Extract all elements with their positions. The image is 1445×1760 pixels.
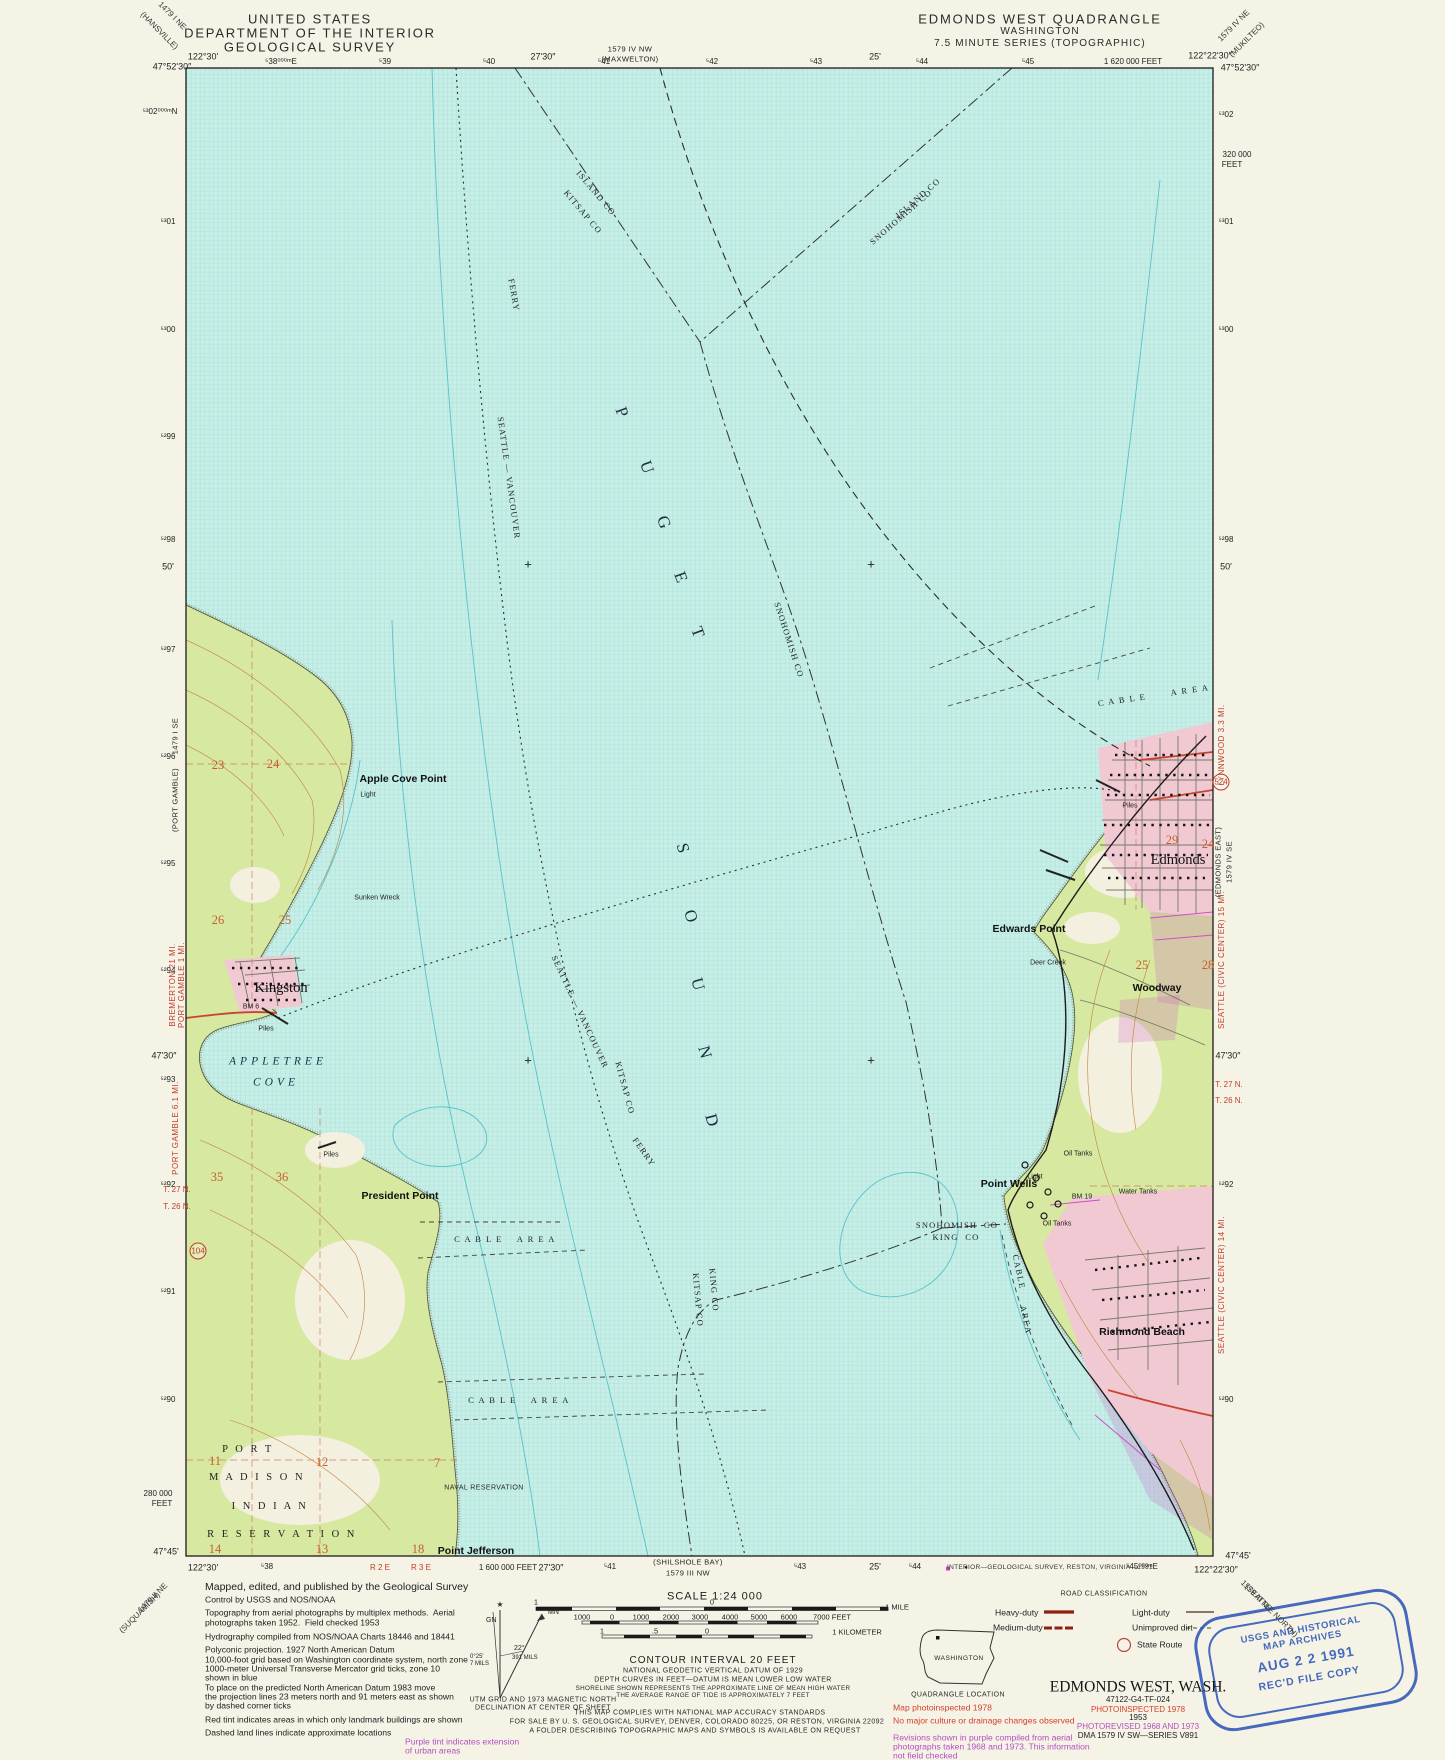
state-name: WASHINGTON [934,1655,983,1662]
magnetic-north-label: MN [548,1609,559,1616]
state-route-icon [1118,1639,1131,1652]
declination-diagram: ★ GN MN 22° 391 MILS 0°25' 7 MILS [462,1598,592,1710]
map-art [0,0,1445,1760]
topo-map-sheet: ★ GN MN 22° 391 MILS 0°25' 7 MILS WASHIN… [0,0,1445,1760]
road-class-swatches [1044,1612,1214,1652]
received-stamp-inner: USGS AND HISTORICAL MAP ARCHIVES AUG 2 2… [1204,1598,1407,1722]
quadrangle-location-map: WASHINGTON [916,1626,1000,1688]
map-interior [186,68,1213,1556]
grid-north-label: GN [486,1617,497,1624]
gn-mils: 7 MILS [470,1661,489,1667]
true-north-star-icon: ★ [496,1600,503,1609]
declination-mils: 391 MILS [512,1655,538,1661]
gn-angle: 0°25' [470,1654,484,1660]
quadrangle-dot [936,1636,940,1640]
declination-angle: 22° [514,1644,525,1652]
